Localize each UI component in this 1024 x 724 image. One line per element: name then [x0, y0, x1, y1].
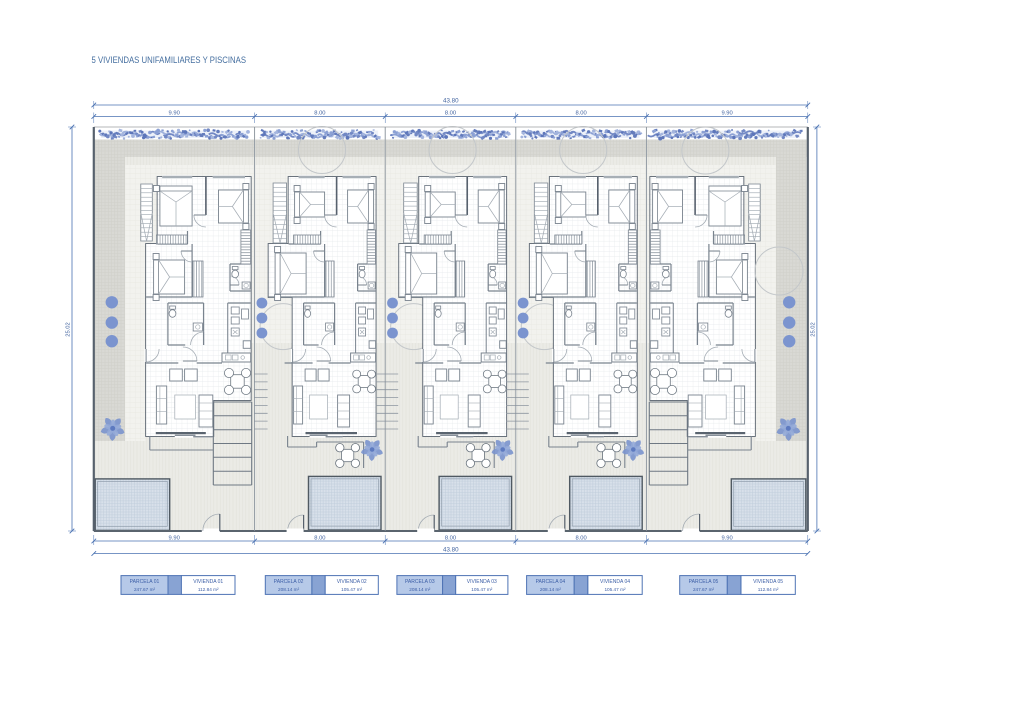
- svg-text:VIVIENDA 01: VIVIENDA 01: [193, 579, 223, 585]
- svg-text:8.00: 8.00: [314, 110, 325, 116]
- svg-text:208.14 m²: 208.14 m²: [278, 587, 300, 592]
- svg-text:VIVIENDA 03: VIVIENDA 03: [467, 579, 497, 585]
- svg-text:247.67 m²: 247.67 m²: [693, 587, 715, 592]
- svg-text:25.02: 25.02: [66, 322, 72, 337]
- svg-text:9.90: 9.90: [721, 535, 732, 541]
- svg-text:8.00: 8.00: [575, 110, 586, 116]
- svg-text:9.90: 9.90: [169, 110, 180, 116]
- svg-text:PARCELA 01: PARCELA 01: [130, 579, 160, 585]
- svg-text:8.00: 8.00: [445, 535, 456, 541]
- svg-text:8.00: 8.00: [314, 535, 325, 541]
- svg-text:105.47 m²: 105.47 m²: [471, 587, 493, 592]
- svg-text:25.02: 25.02: [811, 322, 817, 337]
- svg-text:8.00: 8.00: [575, 535, 586, 541]
- svg-text:208.14 m²: 208.14 m²: [540, 587, 562, 592]
- svg-text:VIVIENDA 02: VIVIENDA 02: [337, 579, 367, 585]
- svg-text:9.90: 9.90: [721, 110, 732, 116]
- svg-text:PARCELA 02: PARCELA 02: [274, 579, 304, 585]
- svg-text:PARCELA 05: PARCELA 05: [689, 579, 719, 585]
- svg-text:PARCELA 04: PARCELA 04: [536, 579, 566, 585]
- svg-text:5 VIVIENDAS UNIFAMILIARES Y PI: 5 VIVIENDAS UNIFAMILIARES Y PISCINAS: [92, 55, 247, 65]
- svg-text:8.00: 8.00: [445, 110, 456, 116]
- svg-text:112.84 m²: 112.84 m²: [758, 587, 779, 592]
- svg-text:43.80: 43.80: [443, 98, 459, 105]
- svg-text:247.67 m²: 247.67 m²: [134, 587, 156, 592]
- svg-text:VIVIENDA 04: VIVIENDA 04: [600, 579, 630, 585]
- svg-text:208.14 m²: 208.14 m²: [409, 587, 431, 592]
- svg-text:105.47 m²: 105.47 m²: [341, 587, 363, 592]
- svg-text:VIVIENDA 05: VIVIENDA 05: [753, 579, 783, 585]
- svg-text:PARCELA 03: PARCELA 03: [405, 579, 435, 585]
- svg-text:43.80: 43.80: [443, 546, 459, 553]
- svg-text:9.90: 9.90: [169, 535, 180, 541]
- svg-text:105.47 m²: 105.47 m²: [604, 587, 626, 592]
- svg-text:112.84 m²: 112.84 m²: [198, 587, 219, 592]
